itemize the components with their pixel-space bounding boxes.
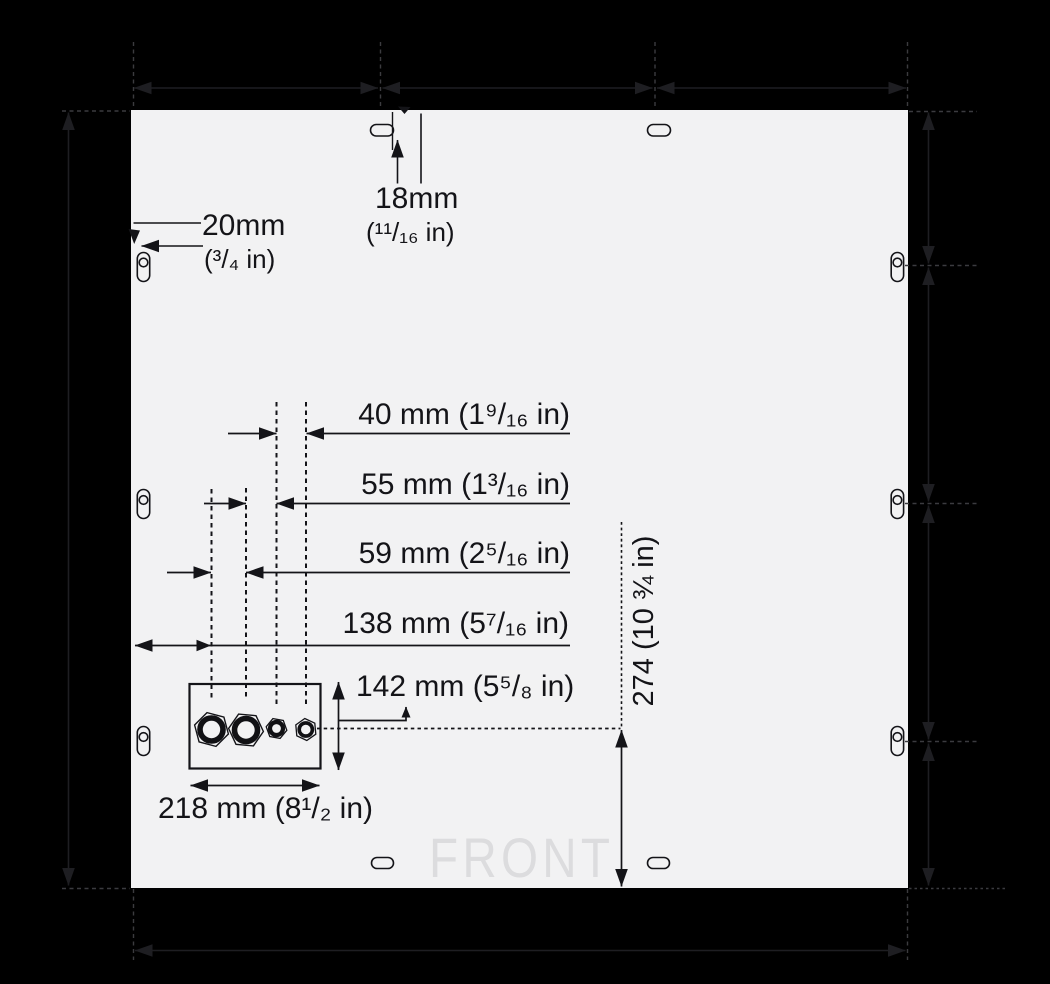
dim-20mm-label: 20mm <box>202 210 285 242</box>
dim-20mm-inch-label: (³/₄ in) <box>204 246 275 273</box>
dim-142-label: 142 mm (5⁵/₈ in) <box>356 671 574 703</box>
dim-18mm-label: 18mm <box>375 183 458 215</box>
dim-274-label: 274 (10 ¾ in) <box>629 511 663 731</box>
dim-138-label: 138 mm (5⁷/₁₆ in) <box>343 608 569 640</box>
dim-40-label: 40 mm (1⁹/₁₆ in) <box>358 399 570 431</box>
dim-218-label: 218 mm (8¹/₂ in) <box>158 793 373 825</box>
dim-55-label: 55 mm (1³/₁₆ in) <box>361 469 570 501</box>
panel-dimension-drawing: 20mm (³/₄ in) 18mm (¹¹/₁₆ in) 40 mm (1⁹/… <box>0 0 1050 984</box>
dim-59-label: 59 mm (2⁵/₁₆ in) <box>359 538 570 570</box>
front-marking: FRONT <box>429 830 614 886</box>
dim-18mm-inch-label: (¹¹/₁₆ in) <box>366 219 455 246</box>
